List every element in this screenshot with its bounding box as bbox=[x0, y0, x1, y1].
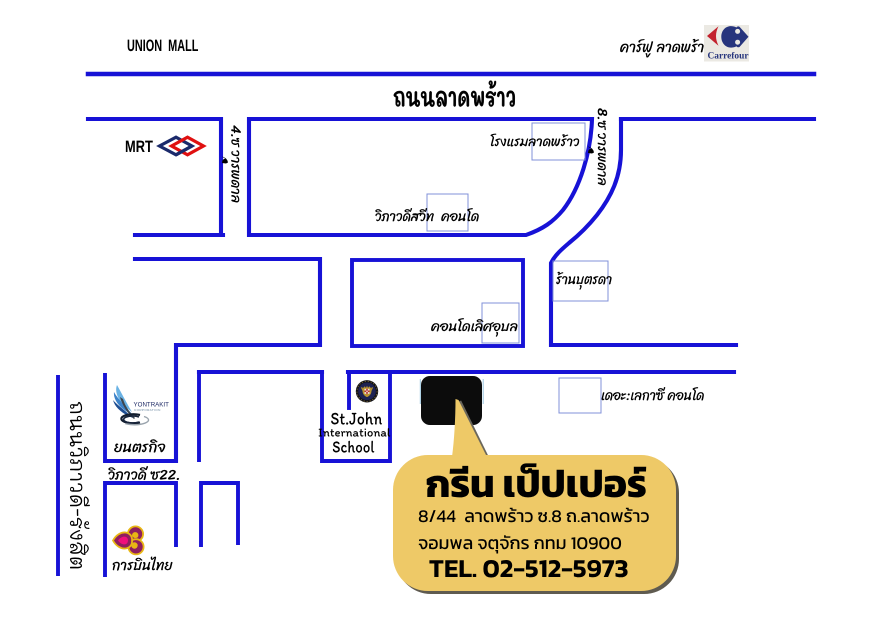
svg-text:Carrefour: Carrefour bbox=[708, 51, 749, 61]
svg-text:CORPORATION: CORPORATION bbox=[134, 408, 161, 412]
